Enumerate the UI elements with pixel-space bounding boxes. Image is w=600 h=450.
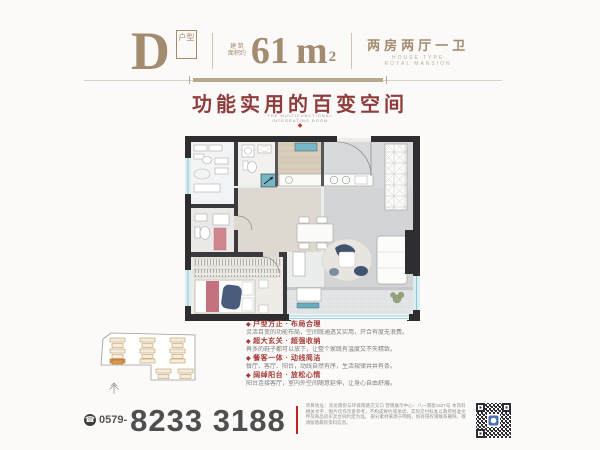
feature-title-text: 户型方正 · 布局合理 [253,321,321,328]
feature-title: ◆户型方正 · 布局合理 [246,321,431,329]
feature-title-text: 阔绰阳台 · 放松心情 [253,372,321,379]
phone-icon: ☎ [84,414,96,426]
area-value: 61 m 2 [251,32,336,70]
disclaimer-line: 项目地址：双龙南街与环城南路交叉口 营销展示中心：八一南街1527号 [306,403,451,408]
unit-type-letter: D [131,24,170,78]
area-label-line1: 建 筑 [230,44,244,50]
area-number: 61 [251,32,289,70]
feature-title: ◆阔绰阳台 · 放松心情 [246,372,431,380]
disclaimer-text: 项目地址：双龙南街与环城南路交叉口 营销展示中心：八一南街1527号 本资料相关… [306,403,466,437]
living-room-rug [322,239,372,281]
feature-title-text: 餐客一体 · 动线简洁 [253,355,321,362]
feature-desc: 餐厅、客厅、阳台，动线自然有序，生活规律井井有条。 [246,363,431,371]
header-divider-right [351,33,352,69]
antenna-mark [110,383,119,394]
diamond-bullet-icon: ◆ [246,373,251,379]
feature-title-text: 超大玄关 · 超强收纳 [253,338,321,345]
rooms-block: 两房两厅一卫 HOUSE TYPE ROYAL MANSION [367,35,469,67]
wardrobe-column [385,144,407,210]
diamond-bullet-icon: ◆ [246,339,251,345]
area-label: 建 筑 面积约 [228,44,246,58]
rooms-sub-line2: ROYAL MANSION [367,61,469,67]
feature-desc: 灵活百变的功能布局，空间既通透又实用，开合有度无浪费。 [246,329,431,337]
feature-desc: 再多的鞋子都可以放下，让整个家既有温度又不失精致。 [246,346,431,354]
phone-number: 8233 3188 [130,405,286,436]
header-divider-left [212,33,213,69]
contact-bar: ☎ 0579- 8233 3188 项目地址：双龙南街与环城南路交叉口 营销展示… [84,400,518,440]
rooms-label: 两房两厅一卫 [367,38,469,53]
feature-title: ◆餐客一体 · 动线简洁 [246,355,431,363]
key-plan-image [98,330,200,398]
area-unit-sup: 2 [329,50,337,65]
feature-title: ◆超大玄关 · 超强收纳 [246,338,431,346]
tv-bench [297,288,321,308]
phone-area-code: 0579- [99,414,127,426]
area-label-line2: 面积约 [228,51,246,57]
diamond-bullet-icon: ◆ [246,356,251,362]
rooms-sublabel: HOUSE TYPE ROYAL MANSION [367,55,469,67]
floor-plan-image [185,130,420,325]
diamond-ornament-icon: ◆ [0,122,600,129]
flyer-page: D 户型 建 筑 面积约 61 m 2 两房两厅一卫 HOUSE TYPE RO… [0,0,600,450]
feature-list: ◆户型方正 · 布局合理 灵活百变的功能布局，空间既通透又实用，开合有度无浪费。… [246,321,431,389]
feature-desc: 阳台连接客厅，室内外空间随意延伸，让身心自由舒展。 [246,380,431,388]
qr-code [475,402,512,439]
diamond-bullet-icon: ◆ [246,322,251,328]
unit-type-box-label: 户型 [176,30,197,59]
header-rule-band [193,78,383,82]
sofa [377,236,407,284]
unit-header: D 户型 建 筑 面积约 61 m 2 两房两厅一卫 HOUSE TYPE RO… [85,24,515,78]
area-unit: m [296,32,328,70]
red-divider [296,406,298,434]
